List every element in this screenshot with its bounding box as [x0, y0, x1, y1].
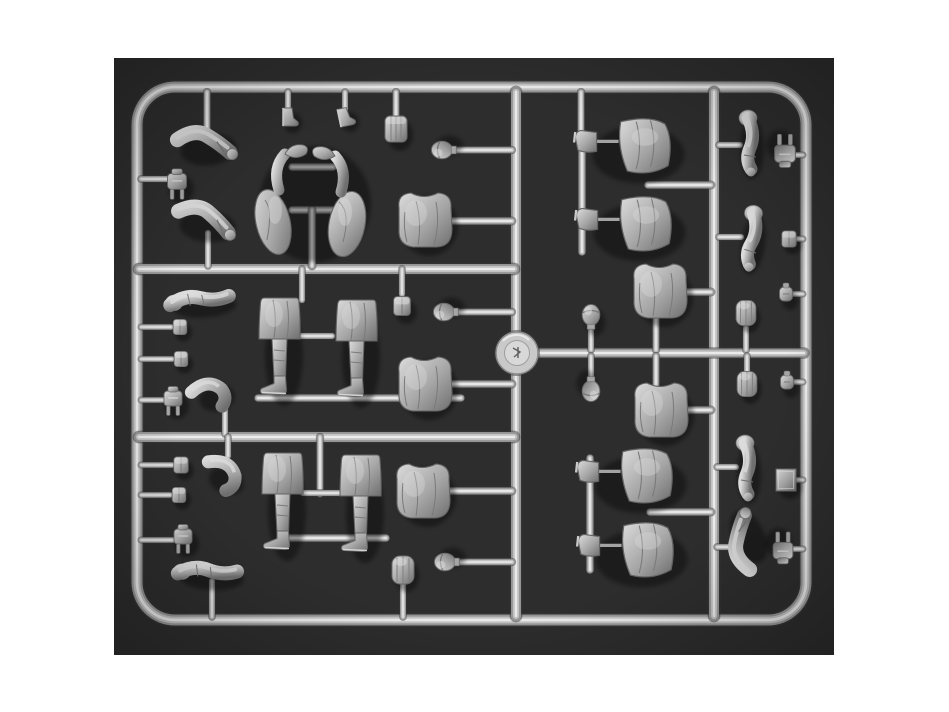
scan-page [0, 0, 949, 712]
photo-vignette [114, 58, 834, 655]
sprue-photo [0, 0, 949, 712]
